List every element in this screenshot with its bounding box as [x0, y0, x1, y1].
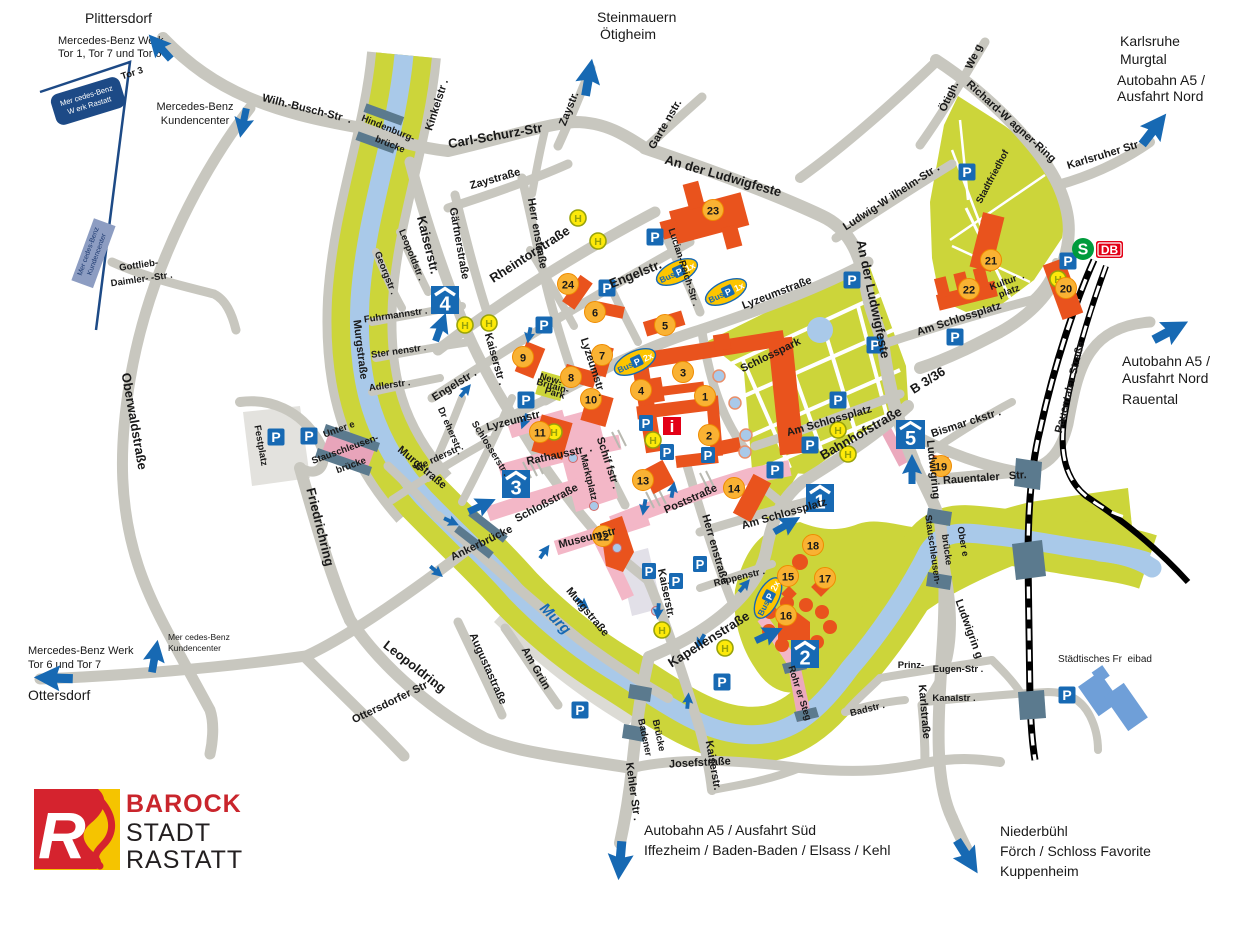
svg-text:Prinz-: Prinz-	[898, 660, 924, 671]
svg-text:S: S	[1078, 242, 1089, 259]
svg-text:7: 7	[599, 351, 605, 363]
svg-text:15: 15	[782, 572, 794, 584]
svg-text:Kundencenter: Kundencenter	[161, 115, 230, 127]
svg-text:STADT: STADT	[126, 819, 211, 847]
svg-text:i: i	[670, 417, 675, 436]
svg-text:DB: DB	[1101, 243, 1119, 257]
svg-text:Ausfahrt Nord: Ausfahrt Nord	[1122, 370, 1208, 386]
svg-text:Mercedes-Benz Werk: Mercedes-Benz Werk	[58, 35, 164, 47]
svg-text:5: 5	[905, 428, 916, 450]
svg-text:9: 9	[520, 353, 526, 365]
svg-text:Mer cedes-Benz: Mer cedes-Benz	[168, 632, 230, 642]
svg-text:BAROCK: BAROCK	[126, 790, 242, 818]
svg-text:Eugen-Str .: Eugen-Str .	[933, 664, 984, 675]
svg-text:Steinmauern: Steinmauern	[597, 9, 676, 25]
svg-text:Rauental: Rauental	[1122, 391, 1178, 407]
svg-text:Karlsruhe: Karlsruhe	[1120, 33, 1180, 49]
svg-text:Tor 1, Tor 7 und Tor 6: Tor 1, Tor 7 und Tor 6	[58, 48, 162, 60]
svg-text:Autobahn A5 /: Autobahn A5 /	[1117, 72, 1205, 88]
svg-text:Förch / Schloss Favorite: Förch / Schloss Favorite	[1000, 843, 1151, 859]
svg-text:6: 6	[592, 308, 598, 320]
svg-text:Autobahn A5 / Ausfahrt Süd: Autobahn A5 / Ausfahrt Süd	[644, 822, 816, 838]
svg-text:Kundencenter: Kundencenter	[168, 643, 221, 653]
svg-text:Autobahn A5 /: Autobahn A5 /	[1122, 353, 1210, 369]
svg-text:1: 1	[702, 392, 708, 404]
svg-text:R: R	[38, 798, 86, 872]
svg-text:2: 2	[706, 431, 712, 443]
svg-text:Ötigheim: Ötigheim	[600, 25, 656, 42]
svg-text:20: 20	[1060, 284, 1072, 296]
svg-text:Tor 6 und Tor 7: Tor 6 und Tor 7	[28, 659, 101, 671]
svg-text:16: 16	[780, 611, 792, 623]
svg-text:Plittersdorf: Plittersdorf	[85, 10, 152, 26]
svg-text:5: 5	[662, 321, 668, 333]
svg-text:10: 10	[585, 395, 597, 407]
svg-text:RASTATT: RASTATT	[126, 846, 243, 874]
svg-text:18: 18	[807, 541, 819, 553]
svg-text:14: 14	[728, 484, 741, 496]
svg-text:21: 21	[985, 256, 997, 268]
svg-text:17: 17	[819, 574, 831, 586]
svg-text:23: 23	[707, 206, 719, 218]
svg-text:11: 11	[534, 428, 546, 440]
svg-text:3: 3	[680, 368, 686, 380]
svg-text:Iffezheim / Baden-Baden / Elsa: Iffezheim / Baden-Baden / Elsass / Kehl	[644, 842, 890, 858]
svg-text:22: 22	[963, 285, 975, 297]
svg-text:24: 24	[562, 280, 575, 292]
svg-text:13: 13	[637, 476, 649, 488]
svg-text:Mercedes-Benz Werk: Mercedes-Benz Werk	[28, 645, 134, 657]
svg-text:Murgtal: Murgtal	[1120, 51, 1167, 67]
svg-text:4: 4	[638, 386, 645, 398]
svg-text:Kuppenheim: Kuppenheim	[1000, 863, 1079, 879]
svg-text:Städtisches Fr eibad: Städtisches Fr eibad	[1058, 654, 1152, 665]
svg-text:Mercedes-Benz: Mercedes-Benz	[156, 101, 233, 113]
svg-text:Kanalstr .: Kanalstr .	[932, 693, 975, 704]
svg-text:Ottersdorf: Ottersdorf	[28, 687, 90, 703]
svg-text:Ausfahrt Nord: Ausfahrt Nord	[1117, 88, 1203, 104]
svg-text:Niederbühl: Niederbühl	[1000, 823, 1068, 839]
svg-text:2: 2	[799, 648, 810, 670]
svg-text:8: 8	[568, 373, 574, 385]
svg-text:3: 3	[510, 478, 521, 500]
svg-text:4: 4	[439, 294, 451, 316]
